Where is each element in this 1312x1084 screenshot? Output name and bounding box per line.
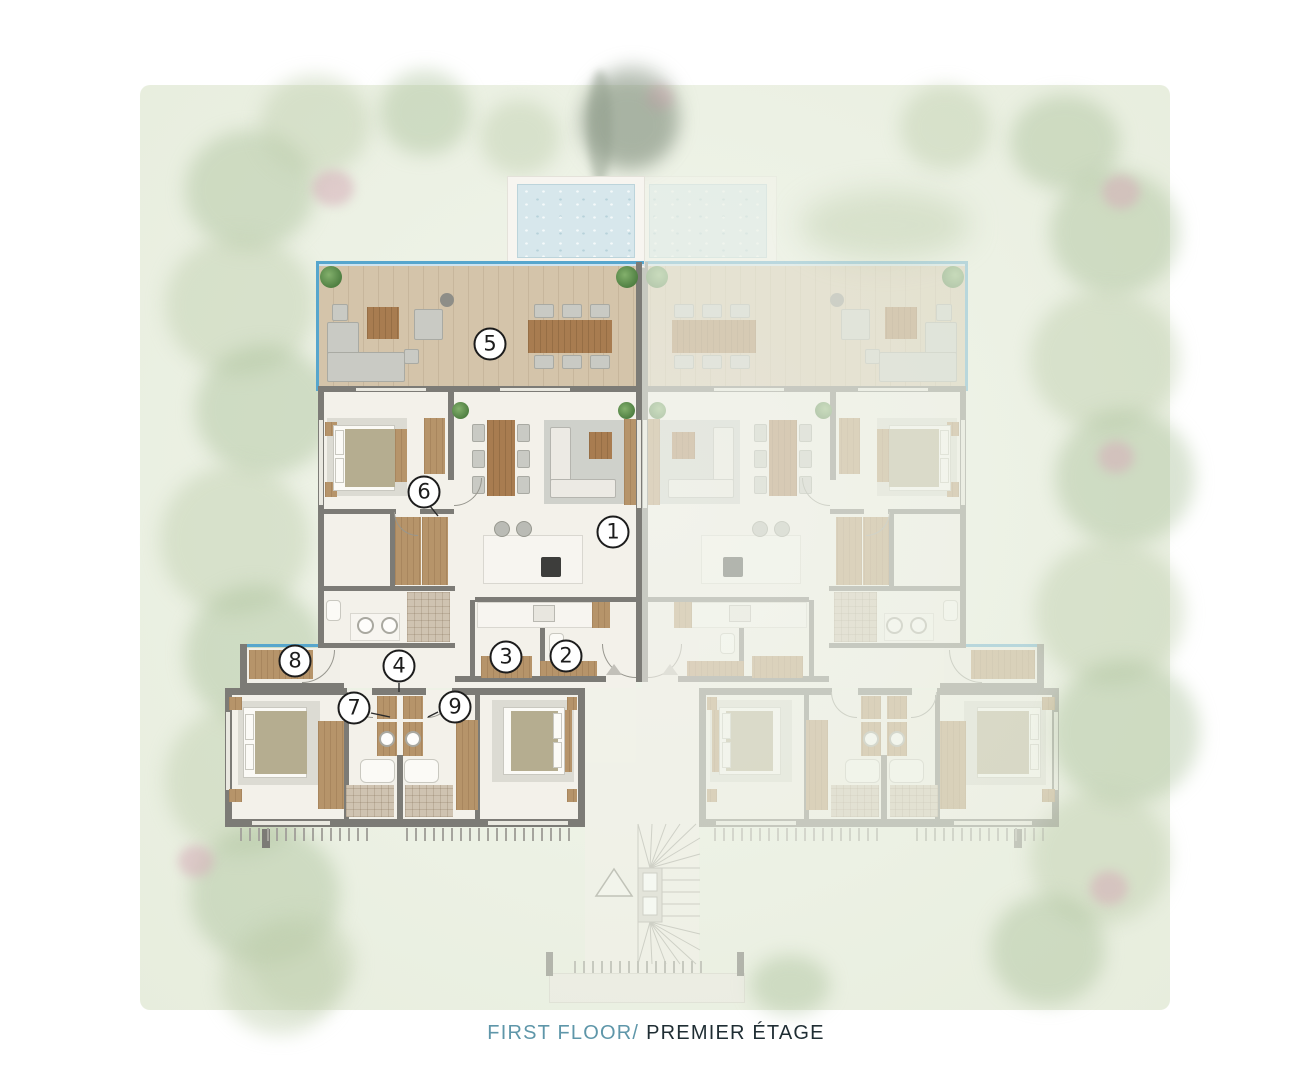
room-marker-1: 1 bbox=[597, 516, 630, 549]
room-marker-2: 2 bbox=[550, 640, 583, 673]
room-marker-3: 3 bbox=[490, 641, 523, 674]
room-markers: 1 2 3 4 5 6 7 8 9 bbox=[0, 0, 1312, 1084]
room-marker-6: 6 bbox=[408, 476, 441, 509]
floor-plan-canvas: 1 2 3 4 5 6 7 8 9 FIRST FLOOR/PREMIER ÉT… bbox=[0, 0, 1312, 1084]
room-marker-4: 4 bbox=[383, 650, 416, 683]
room-marker-7: 7 bbox=[338, 692, 371, 725]
room-marker-8: 8 bbox=[279, 645, 312, 678]
marker-leader-lines bbox=[0, 0, 1312, 1084]
room-marker-5: 5 bbox=[474, 328, 507, 361]
room-marker-9: 9 bbox=[439, 691, 472, 724]
